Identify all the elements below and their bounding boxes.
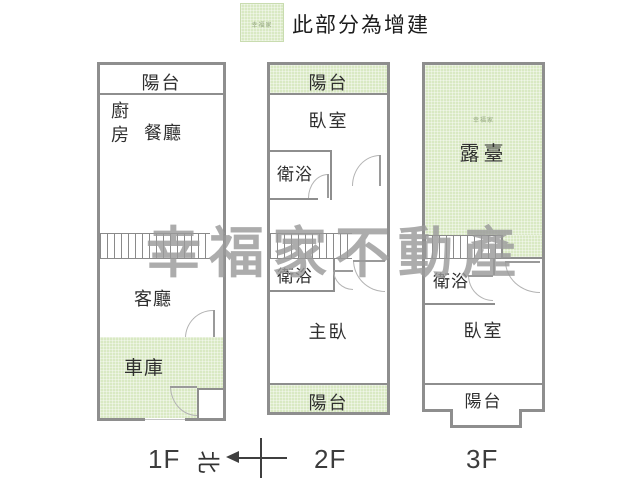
garage-notch — [197, 388, 223, 418]
door-leaf — [170, 386, 197, 388]
room-label-dining: 餐廳 — [144, 119, 182, 145]
room-label-bedroom: 臥室 — [270, 107, 387, 133]
door-arc — [185, 310, 213, 338]
agency-watermark: 幸福家不動產 — [146, 208, 524, 288]
door-leaf — [327, 174, 329, 198]
room-label-bath-upper: 衛浴 — [277, 160, 313, 185]
watermark-small: 幸福家 — [241, 20, 283, 29]
room-label-balcony: 陽台 — [270, 389, 387, 415]
wall — [270, 198, 318, 200]
legend-label: 此部分為增建 — [292, 9, 430, 39]
balcony-protrusion — [450, 409, 522, 428]
room-label-garage: 車庫 — [124, 353, 164, 380]
floor-label-2f: 2F — [314, 444, 346, 475]
room-label-kitchen: 廚房 — [106, 101, 132, 149]
floor-label-3f: 3F — [466, 444, 498, 475]
door-leaf — [213, 310, 215, 338]
room-label-living: 客廳 — [134, 285, 172, 311]
room-label-balcony: 陽台 — [100, 69, 223, 95]
floor-label-1f: 1F — [148, 444, 180, 475]
balcony-3f-bottom: 陽台 — [425, 383, 542, 409]
wall — [270, 150, 332, 152]
room-label-master-bedroom: 主臥 — [270, 318, 387, 344]
wall — [425, 303, 495, 305]
room-label-bedroom: 臥室 — [425, 317, 542, 343]
room-label-balcony: 陽台 — [270, 69, 387, 95]
garage-door-line — [145, 419, 185, 420]
wall — [330, 150, 332, 200]
legend-addition-swatch: 幸福家 — [240, 3, 284, 42]
floorplan-canvas: 幸福家 此部分為增建 陽台 廚房 餐廳 客廳 車庫 陽台 臥室 衛浴 — [0, 0, 640, 480]
door-leaf — [379, 155, 381, 186]
balcony-1f-top: 陽台 — [100, 65, 223, 95]
room-label-terrace: 露臺 — [425, 137, 542, 166]
compass-north-label: 北 — [194, 451, 228, 474]
balcony-2f-bottom: 陽台 — [270, 383, 387, 412]
door-arc — [352, 155, 380, 186]
compass-cross — [260, 438, 262, 478]
watermark-small: 幸福家 — [425, 115, 542, 124]
wall — [270, 290, 335, 292]
balcony-2f-top: 陽台 — [270, 65, 387, 95]
